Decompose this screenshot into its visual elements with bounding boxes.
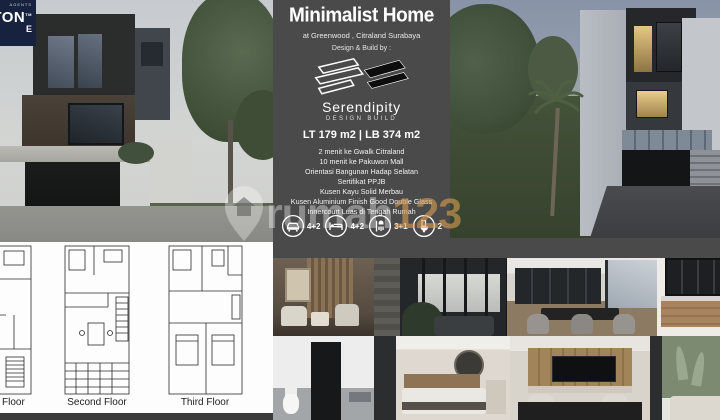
sofa: [434, 316, 494, 336]
dining-chair: [527, 314, 549, 334]
agency-badge-text: TON: [0, 9, 25, 26]
floor-plans-sheet: Floor Second Floor Third Floor: [0, 242, 273, 420]
stat-value: 4+2: [307, 222, 321, 231]
floor-plan-label: Floor: [2, 397, 25, 408]
glass-partition: [374, 336, 396, 420]
window: [141, 42, 163, 66]
agency-badge-line2: TONTM: [0, 7, 32, 25]
window: [656, 22, 682, 72]
side-wall: [150, 138, 192, 208]
land-building-area: LT 179 m2 | LB 374 m2: [273, 129, 450, 141]
trademark-mark: TM: [25, 12, 32, 17]
photo-interior-living-tv: [510, 336, 650, 420]
floor-plan-label: Second Floor: [57, 397, 137, 408]
design-by-label: Design & Build by :: [273, 45, 450, 52]
car-icon: [281, 214, 305, 238]
tv-screen: [552, 356, 616, 382]
feature-line: 2 menit ke Gwalk Citraland: [273, 147, 450, 157]
bed-throw: [402, 402, 486, 410]
photo-exterior-front: AGENTS TONTM E: [0, 0, 273, 242]
feature-list: 2 menit ke Gwalk Citraland 10 menit ke P…: [273, 147, 450, 217]
armchair: [281, 306, 307, 326]
black-door: [311, 342, 341, 420]
bed: [670, 396, 720, 420]
stat-value: 3+1: [394, 222, 408, 231]
stat-value: 4+2: [350, 222, 364, 231]
stat-value: 2: [438, 222, 442, 231]
feature-line: Sertifikat PPJB: [273, 177, 450, 187]
floor-plan-label: Third Floor: [165, 397, 245, 408]
photo-interior-innercourt: [374, 258, 507, 336]
studio-name: Serendipity: [273, 99, 450, 115]
palm-tree: [526, 78, 586, 118]
studio-tagline: DESIGN BUILD: [273, 116, 450, 122]
stats-row: 4+2 4+2 3+1: [273, 214, 450, 238]
listing-location: at Greenwood , Citraland Surabaya: [273, 31, 450, 40]
photo-interior-bedroom: [374, 336, 510, 420]
stat-garage: 4+2: [281, 214, 321, 238]
photo-interior-bathroom: [273, 336, 374, 420]
toilet-icon: [412, 214, 436, 238]
vanity: [349, 392, 371, 402]
dining-table: [518, 402, 642, 420]
stat-bedrooms: 4+2: [324, 214, 364, 238]
feature-line: Kusen Kayu Solid Merbau: [273, 187, 450, 197]
bed: [402, 388, 486, 414]
agency-badge-line3: E: [0, 25, 32, 34]
photo-interior-green-bedroom: [650, 336, 720, 420]
stat-bathrooms: 3+1: [368, 214, 408, 238]
info-panel: Minimalist Home at Greenwood , Citraland…: [273, 0, 450, 258]
lit-window: [636, 90, 668, 118]
toilet: [283, 394, 299, 414]
floor-plan-third: [168, 245, 243, 395]
glass-frame: [650, 336, 662, 420]
feature-line: 10 menit ke Pakuwon Mall: [273, 157, 450, 167]
dining-chair: [613, 314, 635, 334]
floor-plan-second: [64, 245, 130, 395]
studio-logo-icon: [302, 55, 422, 99]
wall-art: [285, 268, 311, 302]
photo-exterior-aerial: [450, 0, 720, 238]
photo-interior-kitchen: [657, 258, 720, 336]
headboard: [404, 374, 480, 388]
window: [605, 260, 657, 308]
shower-icon: [368, 214, 392, 238]
wood-cabinet: [661, 301, 720, 327]
side-table: [311, 312, 329, 326]
stat-toilets: 2: [412, 214, 442, 238]
floor-plan-first: [0, 245, 32, 395]
lit-window: [634, 26, 652, 72]
glass-canopy: [622, 130, 712, 150]
upper-cabinet: [665, 258, 720, 296]
shrub: [118, 142, 154, 164]
photo-interior-dining: [507, 258, 657, 336]
armchair: [335, 304, 359, 326]
feature-line: Kusen Aluminium Finish Good Double Glass: [273, 197, 450, 207]
listing-collage: AGENTS TONTM E Minimalist Home at Greenw…: [0, 0, 720, 420]
tv-console: [528, 386, 632, 393]
glass-cabinet-wall: [515, 268, 601, 304]
divider: [0, 413, 273, 420]
feature-line: Orientasi Bangunan Hadap Selatan: [273, 167, 450, 177]
dining-chair: [571, 314, 593, 334]
green-accent-wall: [662, 336, 720, 398]
stone-wall: [374, 258, 400, 336]
tree-trunk: [228, 120, 233, 212]
stairs: [690, 150, 720, 186]
window: [78, 34, 102, 88]
window: [68, 103, 124, 145]
driveway: [0, 206, 273, 242]
window: [48, 36, 74, 88]
agency-logo-badge: AGENTS TONTM E: [0, 0, 36, 46]
bed-icon: [324, 214, 348, 238]
listing-title: Minimalist Home: [273, 0, 450, 28]
photo-interior-sitting-area: [273, 258, 374, 336]
driveway: [590, 186, 720, 238]
dresser: [486, 380, 506, 414]
